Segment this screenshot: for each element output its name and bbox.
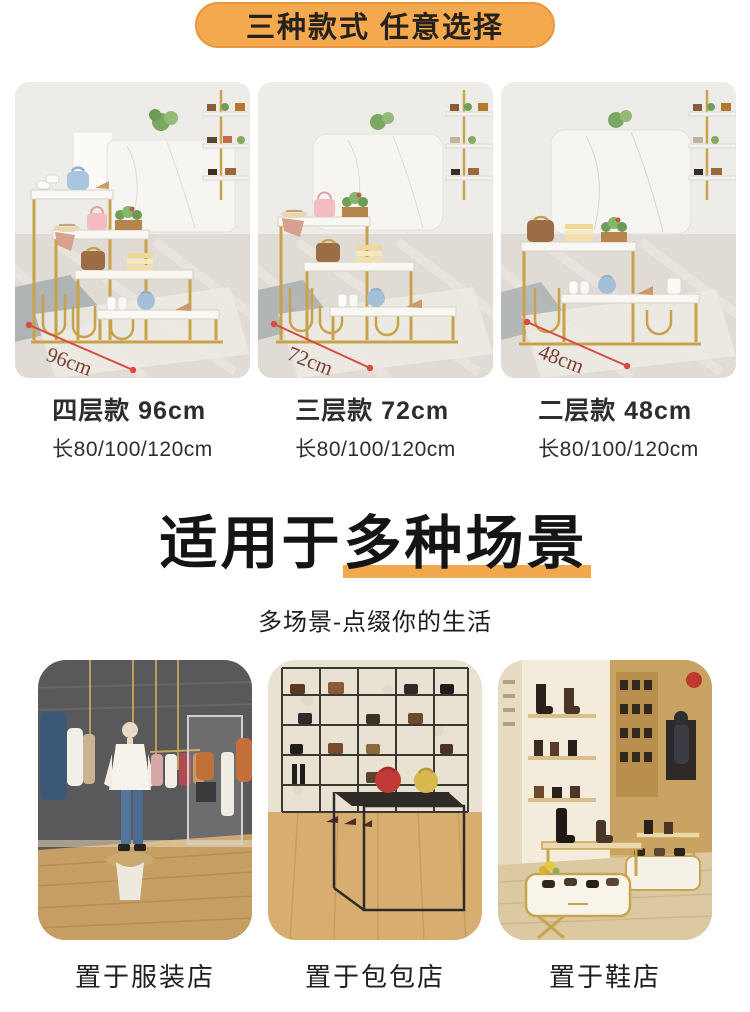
section-heading: 适用于多种场景 <box>0 496 750 580</box>
variant-name: 三层款 72cm <box>295 391 456 427</box>
section-subtitle: 多场景-点缀你的生活 <box>0 602 750 637</box>
heading-plain: 适用于 <box>159 511 342 576</box>
product-variant-4-tier: 96cm 四层款 96cm 长80/100/120cm <box>15 82 250 463</box>
variant-name: 四层款 96cm <box>52 391 213 427</box>
clothing-store-illustration <box>38 660 252 940</box>
scene-row: 置于服装店 <box>38 660 712 994</box>
shoe-store-photo <box>498 660 712 940</box>
product-photo-2-tier: 48cm <box>501 82 736 378</box>
scene-bag-store: 置于包包店 <box>268 660 482 994</box>
styles-banner: 三种款式 任意选择 <box>195 2 555 48</box>
scene-shoe-store: 置于鞋店 <box>498 660 712 994</box>
store-background <box>610 660 712 855</box>
red-sign <box>686 672 702 688</box>
shoe-store-illustration <box>498 660 712 940</box>
scene-label: 置于服装店 <box>75 957 215 994</box>
scene-label: 置于包包店 <box>305 957 445 994</box>
variant-size: 长80/100/120cm <box>295 433 456 463</box>
product-variants-row: 96cm 四层款 96cm 长80/100/120cm <box>15 82 737 463</box>
bag-store-illustration <box>268 660 482 940</box>
scene-clothing-store: 置于服装店 <box>38 660 252 994</box>
clothes-right <box>236 738 252 782</box>
product-variant-2-tier: 48cm 二层款 48cm 长80/100/120cm <box>501 82 736 463</box>
product-photo-4-tier: 96cm <box>15 82 250 378</box>
glass-display-case <box>188 716 242 844</box>
variant-size: 长80/100/120cm <box>538 433 699 463</box>
rack-illustration-3-tier: 72cm <box>258 82 493 378</box>
rack-illustration-2-tier: 48cm <box>501 82 736 378</box>
product-variant-3-tier: 72cm 三层款 72cm 长80/100/120cm <box>258 82 493 463</box>
product-photo-3-tier: 72cm <box>258 82 493 378</box>
clothing-store-photo <box>38 660 252 940</box>
variant-size: 长80/100/120cm <box>52 433 213 463</box>
scene-label: 置于鞋店 <box>549 957 661 994</box>
variant-name: 二层款 48cm <box>538 391 699 427</box>
bag-store-photo <box>268 660 482 940</box>
heading-highlight: 多种场景 <box>343 511 591 578</box>
rack-illustration-4-tier: 96cm <box>15 82 250 378</box>
reception-desk <box>551 130 691 234</box>
banner-text: 三种款式 任意选择 <box>246 4 504 46</box>
